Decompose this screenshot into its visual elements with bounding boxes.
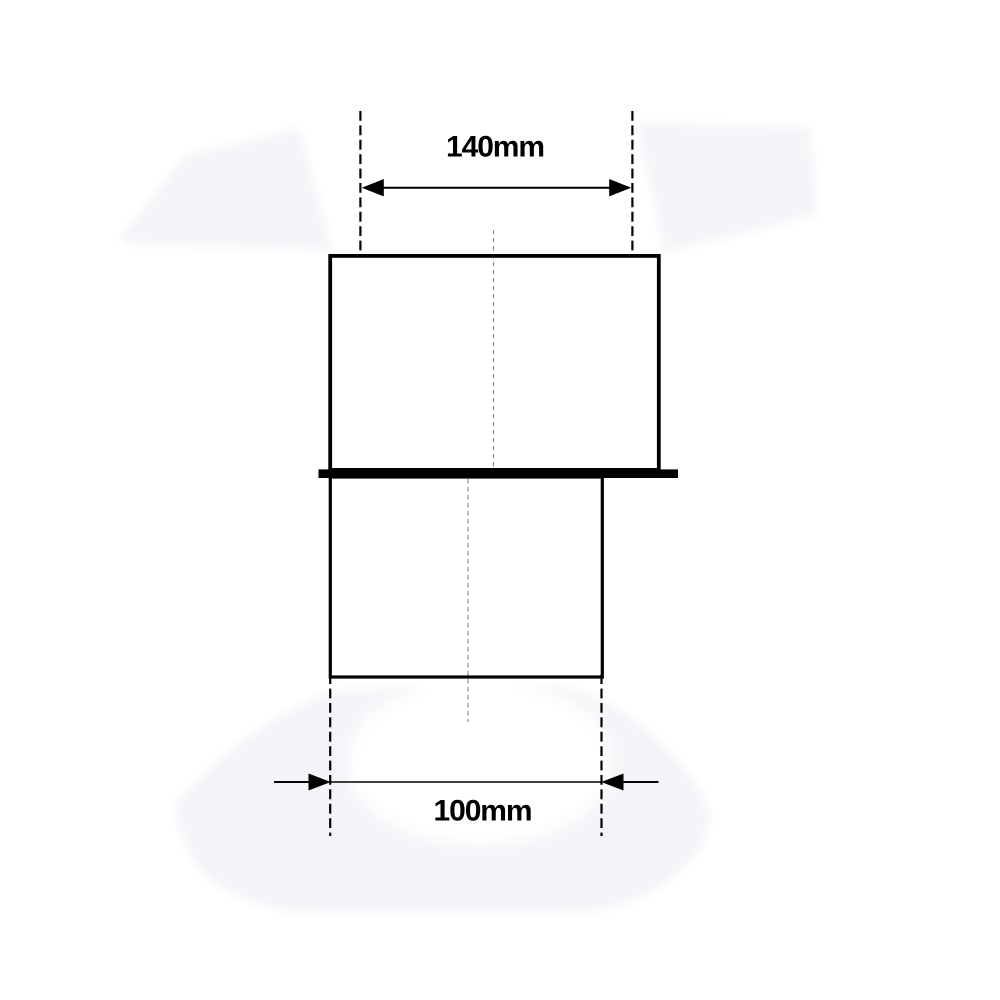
svg-text:100mm: 100mm [434,795,532,828]
svg-text:140mm: 140mm [446,131,544,164]
